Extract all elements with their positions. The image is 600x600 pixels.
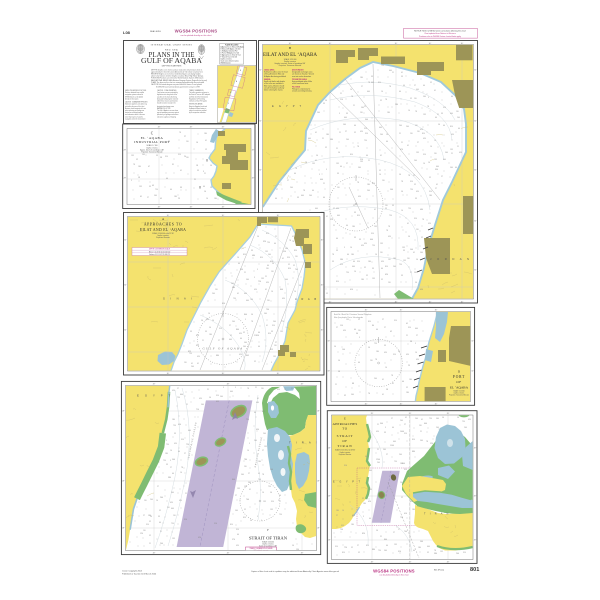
svg-text:30°: 30° — [321, 330, 324, 332]
svg-text:110: 110 — [419, 425, 422, 427]
svg-text:92: 92 — [351, 547, 353, 549]
svg-text:27: 27 — [276, 189, 278, 191]
svg-text:560: 560 — [343, 124, 346, 126]
svg-text:180: 180 — [336, 510, 339, 512]
svg-text:1000: 1000 — [400, 431, 404, 433]
svg-text:135: 135 — [374, 226, 377, 228]
svg-text:420: 420 — [364, 243, 367, 245]
svg-text:64: 64 — [340, 166, 342, 168]
svg-text:420: 420 — [388, 236, 391, 238]
svg-text:27: 27 — [404, 424, 406, 426]
svg-text:240: 240 — [263, 433, 266, 435]
svg-text:27: 27 — [336, 515, 338, 517]
svg-text:845: 845 — [246, 355, 249, 357]
svg-text:31: 31 — [172, 164, 174, 166]
svg-text:64: 64 — [294, 173, 296, 175]
svg-text:420: 420 — [179, 500, 182, 502]
svg-text:27: 27 — [357, 545, 359, 547]
svg-text:110: 110 — [407, 258, 410, 260]
svg-text:240: 240 — [346, 139, 349, 141]
svg-text:78: 78 — [375, 359, 377, 361]
svg-text:720: 720 — [410, 189, 413, 191]
svg-text:27: 27 — [184, 453, 186, 455]
svg-text:110: 110 — [167, 507, 170, 509]
svg-text:96: 96 — [356, 333, 358, 335]
svg-text:78: 78 — [434, 550, 436, 552]
svg-text:135: 135 — [450, 149, 453, 151]
svg-text:9: 9 — [223, 387, 224, 389]
svg-text:9: 9 — [261, 520, 262, 522]
svg-text:84: 84 — [372, 325, 374, 327]
svg-text:GULF OF AQABA: GULF OF AQABA — [141, 58, 202, 65]
svg-text:41: 41 — [180, 170, 182, 172]
svg-text:240: 240 — [273, 321, 276, 323]
svg-text:720: 720 — [258, 281, 261, 283]
svg-text:30°: 30° — [167, 373, 170, 375]
svg-text:64: 64 — [399, 91, 401, 93]
svg-text:92: 92 — [406, 387, 408, 389]
svg-text:420: 420 — [199, 398, 202, 400]
svg-text:27: 27 — [157, 486, 159, 488]
svg-text:940: 940 — [402, 463, 405, 465]
svg-text:310: 310 — [335, 546, 338, 548]
svg-text:28°: 28° — [222, 126, 225, 128]
svg-text:640: 640 — [244, 293, 247, 295]
svg-text:560: 560 — [450, 167, 453, 169]
svg-text:9: 9 — [319, 174, 320, 176]
svg-text:92: 92 — [429, 177, 431, 179]
svg-text:580: 580 — [340, 259, 343, 261]
svg-text:21: 21 — [204, 173, 206, 175]
svg-text:64: 64 — [458, 128, 460, 130]
svg-text:12: 12 — [205, 149, 207, 151]
svg-text:880: 880 — [412, 451, 415, 453]
svg-text:240: 240 — [456, 553, 459, 555]
svg-text:720: 720 — [374, 343, 377, 345]
svg-text:810: 810 — [422, 133, 425, 135]
svg-text:30°: 30° — [222, 373, 225, 375]
svg-text:27: 27 — [416, 335, 418, 337]
svg-text:810: 810 — [357, 215, 360, 217]
svg-text:180: 180 — [204, 133, 207, 135]
svg-text:Copies of this chart and its u: Copies of this chart and its updates may… — [251, 570, 339, 573]
svg-text:29: 29 — [178, 198, 180, 200]
svg-text:640: 640 — [450, 113, 453, 115]
svg-text:560: 560 — [154, 195, 157, 197]
svg-text:STRAIT: STRAIT — [337, 434, 354, 438]
svg-text:78: 78 — [391, 375, 393, 377]
svg-text:110: 110 — [337, 187, 340, 189]
svg-text:640: 640 — [229, 339, 232, 341]
svg-text:27: 27 — [435, 188, 437, 190]
svg-text:64: 64 — [336, 238, 338, 240]
svg-text:28°: 28° — [328, 448, 331, 450]
svg-text:41: 41 — [249, 489, 251, 491]
svg-text:64: 64 — [312, 190, 314, 192]
svg-text:110: 110 — [388, 259, 391, 261]
svg-text:33: 33 — [156, 155, 158, 157]
svg-text:27: 27 — [345, 131, 347, 133]
svg-text:240: 240 — [232, 321, 235, 323]
svg-text:520: 520 — [430, 443, 433, 445]
svg-text:420: 420 — [376, 431, 379, 433]
svg-text:WGS84 POSITIONS: WGS84 POSITIONS — [373, 569, 415, 574]
svg-text:21: 21 — [186, 404, 188, 406]
svg-text:30°: 30° — [328, 341, 331, 343]
svg-text:9: 9 — [131, 180, 132, 182]
svg-text:92: 92 — [421, 237, 423, 239]
svg-text:310: 310 — [357, 261, 360, 263]
svg-text:78: 78 — [332, 254, 334, 256]
svg-text:78: 78 — [368, 82, 370, 84]
svg-text:STRAIT OF TIRAN: STRAIT OF TIRAN — [249, 536, 287, 541]
svg-text:21: 21 — [451, 153, 453, 155]
svg-text:64: 64 — [347, 254, 349, 256]
svg-text:41: 41 — [406, 323, 408, 325]
svg-text:1200: 1200 — [376, 459, 380, 461]
svg-text:92: 92 — [149, 535, 151, 537]
svg-text:180: 180 — [429, 195, 432, 197]
svg-text:640: 640 — [180, 394, 183, 396]
svg-text:21: 21 — [340, 93, 342, 95]
svg-text:92: 92 — [325, 147, 327, 149]
svg-text:640: 640 — [301, 195, 304, 197]
svg-text:110: 110 — [261, 388, 264, 390]
svg-text:900: 900 — [380, 423, 383, 425]
svg-text:27: 27 — [184, 136, 186, 138]
svg-text:92: 92 — [159, 510, 161, 512]
svg-text:21: 21 — [401, 142, 403, 144]
svg-text:310: 310 — [272, 325, 275, 327]
svg-text:810: 810 — [222, 303, 225, 305]
svg-text:110: 110 — [416, 229, 419, 231]
svg-text:560: 560 — [285, 248, 288, 250]
svg-text:78: 78 — [388, 226, 390, 228]
svg-text:640: 640 — [424, 423, 427, 425]
svg-text:560: 560 — [235, 510, 238, 512]
svg-text:420: 420 — [416, 359, 419, 361]
svg-text:470: 470 — [262, 411, 265, 413]
svg-text:310: 310 — [184, 519, 187, 521]
svg-text:14: 14 — [379, 174, 381, 176]
svg-text:33: 33 — [385, 208, 387, 210]
svg-text:14: 14 — [430, 146, 432, 148]
svg-text:30°: 30° — [259, 70, 262, 72]
svg-text:110: 110 — [434, 153, 437, 155]
svg-text:14: 14 — [180, 472, 182, 474]
svg-text:720: 720 — [389, 215, 392, 217]
svg-text:55: 55 — [398, 351, 400, 353]
svg-text:33: 33 — [149, 186, 151, 188]
svg-text:420: 420 — [451, 134, 454, 136]
svg-text:52: 52 — [136, 159, 138, 161]
svg-text:560: 560 — [383, 449, 386, 451]
svg-text:180: 180 — [412, 509, 415, 511]
svg-text:240: 240 — [231, 283, 234, 285]
svg-text:92: 92 — [254, 361, 256, 363]
svg-text:180: 180 — [376, 351, 379, 353]
svg-text:78: 78 — [422, 219, 424, 221]
svg-text:56: 56 — [316, 155, 318, 157]
svg-text:560: 560 — [390, 189, 393, 191]
svg-text:92: 92 — [410, 98, 412, 100]
svg-text:420: 420 — [358, 196, 361, 198]
svg-text:56: 56 — [150, 516, 152, 518]
svg-text:560: 560 — [220, 396, 223, 398]
svg-text:560: 560 — [201, 404, 204, 406]
svg-text:180: 180 — [214, 198, 217, 200]
svg-text:760: 760 — [258, 479, 261, 481]
svg-text:420: 420 — [254, 289, 257, 291]
svg-text:21: 21 — [457, 146, 459, 148]
svg-text:800: 800 — [232, 479, 235, 481]
svg-text:30°: 30° — [395, 301, 398, 303]
svg-text:64: 64 — [237, 534, 239, 536]
svg-text:78: 78 — [289, 240, 291, 242]
svg-text:27: 27 — [218, 340, 220, 342]
svg-text:240: 240 — [457, 117, 460, 119]
svg-text:640: 640 — [337, 215, 340, 217]
svg-text:790: 790 — [340, 529, 343, 531]
svg-text:180: 180 — [351, 524, 354, 526]
svg-text:9: 9 — [385, 427, 386, 429]
svg-text:92: 92 — [358, 552, 360, 554]
svg-text:33: 33 — [174, 433, 176, 435]
svg-text:41: 41 — [315, 132, 317, 134]
svg-text:410: 410 — [404, 513, 407, 515]
svg-text:64: 64 — [274, 243, 276, 245]
svg-text:56: 56 — [270, 492, 272, 494]
svg-text:30°: 30° — [259, 121, 262, 123]
svg-text:28°: 28° — [301, 553, 304, 555]
svg-text:64: 64 — [203, 186, 205, 188]
svg-text:780: 780 — [244, 459, 247, 461]
svg-text:640: 640 — [256, 402, 259, 404]
svg-text:B: B — [240, 70, 241, 72]
svg-text:14: 14 — [401, 210, 403, 212]
svg-text:41: 41 — [265, 289, 267, 291]
svg-text:14: 14 — [342, 510, 344, 512]
svg-text:40: 40 — [166, 178, 168, 180]
svg-text:420: 420 — [266, 282, 269, 284]
svg-text:790: 790 — [266, 309, 269, 311]
svg-text:800: 800 — [280, 289, 283, 291]
svg-text:135: 135 — [360, 161, 363, 163]
svg-text:30°: 30° — [277, 373, 280, 375]
svg-text:740: 740 — [246, 499, 249, 501]
svg-text:420: 420 — [336, 208, 339, 210]
svg-text:28°: 28° — [474, 448, 477, 450]
svg-text:14: 14 — [271, 291, 273, 293]
svg-text:310: 310 — [371, 233, 374, 235]
svg-text:64: 64 — [423, 85, 425, 87]
svg-text:27: 27 — [336, 327, 338, 329]
svg-text:41: 41 — [292, 236, 294, 238]
svg-text:9: 9 — [245, 319, 246, 321]
svg-text:815: 815 — [270, 349, 273, 351]
svg-text:56: 56 — [292, 545, 294, 547]
svg-text:910: 910 — [398, 551, 401, 553]
svg-text:720: 720 — [177, 397, 180, 399]
svg-text:30°: 30° — [400, 404, 403, 406]
svg-text:64: 64 — [451, 96, 453, 98]
svg-text:110: 110 — [186, 157, 189, 159]
svg-text:41: 41 — [407, 223, 409, 225]
svg-text:420: 420 — [197, 356, 200, 358]
svg-text:30°: 30° — [124, 285, 127, 287]
svg-text:64: 64 — [386, 141, 388, 143]
svg-text:J O R D A N: J O R D A N — [430, 257, 471, 261]
svg-text:28°: 28° — [122, 481, 125, 483]
svg-text:56: 56 — [210, 187, 212, 189]
svg-text:104: 104 — [342, 349, 345, 351]
svg-text:110: 110 — [388, 282, 391, 284]
svg-text:180: 180 — [361, 279, 364, 281]
svg-text:27: 27 — [391, 418, 393, 420]
svg-text:92: 92 — [354, 132, 356, 134]
svg-text:640: 640 — [371, 82, 374, 84]
svg-text:690: 690 — [256, 429, 259, 431]
svg-text:720: 720 — [163, 460, 166, 462]
svg-text:810: 810 — [243, 254, 246, 256]
svg-text:58: 58 — [386, 389, 388, 391]
svg-text:310: 310 — [429, 191, 432, 193]
svg-text:E G Y P T: E G Y P T — [272, 104, 303, 108]
svg-text:440: 440 — [320, 179, 323, 181]
svg-text:27: 27 — [143, 515, 145, 517]
svg-text:180: 180 — [393, 258, 396, 260]
svg-text:33: 33 — [158, 516, 160, 518]
svg-text:33: 33 — [346, 113, 348, 115]
svg-text:810: 810 — [342, 552, 345, 554]
svg-text:27: 27 — [262, 450, 264, 452]
svg-text:27: 27 — [346, 163, 348, 165]
svg-text:9: 9 — [257, 516, 258, 518]
svg-text:56: 56 — [209, 397, 211, 399]
svg-text:180: 180 — [258, 461, 261, 463]
svg-text:720: 720 — [429, 418, 432, 420]
svg-text:135: 135 — [423, 114, 426, 116]
svg-text:58: 58 — [138, 177, 140, 179]
svg-text:340: 340 — [270, 469, 273, 471]
svg-text:640: 640 — [188, 430, 191, 432]
svg-text:600: 600 — [370, 239, 373, 241]
svg-text:E G Y P T: E G Y P T — [333, 481, 362, 484]
svg-text:420: 420 — [170, 502, 173, 504]
svg-text:38: 38 — [160, 157, 162, 159]
svg-text:14: 14 — [415, 352, 417, 354]
svg-text:640: 640 — [416, 89, 419, 91]
svg-text:92: 92 — [430, 82, 432, 84]
svg-text:810: 810 — [294, 250, 297, 252]
svg-text:420: 420 — [381, 261, 384, 263]
svg-text:380: 380 — [168, 477, 171, 479]
svg-text:570: 570 — [232, 539, 235, 541]
svg-text:27: 27 — [417, 142, 419, 144]
svg-text:41: 41 — [380, 155, 382, 157]
svg-text:135: 135 — [403, 260, 406, 262]
svg-text:41: 41 — [205, 140, 207, 142]
svg-text:720: 720 — [171, 523, 174, 525]
svg-text:350: 350 — [410, 501, 413, 503]
svg-text:135: 135 — [280, 331, 283, 333]
svg-text:27: 27 — [386, 454, 388, 456]
svg-text:OF: OF — [456, 380, 462, 384]
svg-text:33: 33 — [299, 285, 301, 287]
svg-text:180: 180 — [363, 503, 366, 505]
svg-text:420: 420 — [277, 389, 280, 391]
svg-text:21: 21 — [392, 72, 394, 74]
svg-text:720: 720 — [408, 208, 411, 210]
svg-text:14: 14 — [262, 492, 264, 494]
svg-text:480: 480 — [420, 209, 423, 211]
svg-text:78: 78 — [426, 441, 428, 443]
svg-text:180: 180 — [409, 379, 412, 381]
svg-text:620: 620 — [385, 274, 388, 276]
svg-text:1100: 1100 — [390, 445, 394, 447]
svg-text:28°: 28° — [328, 540, 331, 542]
svg-text:420: 420 — [198, 537, 201, 539]
svg-text:30°: 30° — [328, 371, 331, 373]
svg-text:110: 110 — [215, 289, 218, 291]
svg-text:560: 560 — [414, 272, 417, 274]
svg-text:64: 64 — [170, 189, 172, 191]
svg-text:380: 380 — [330, 139, 333, 141]
svg-text:240: 240 — [377, 462, 380, 464]
svg-text:27: 27 — [235, 495, 237, 497]
svg-text:33: 33 — [197, 170, 199, 172]
svg-text:690: 690 — [178, 424, 181, 426]
svg-text:21: 21 — [336, 148, 338, 150]
svg-text:810: 810 — [385, 266, 388, 268]
svg-text:240: 240 — [380, 134, 383, 136]
svg-text:420: 420 — [236, 545, 239, 547]
svg-text:SEA LEVEL: SEA LEVEL — [150, 30, 162, 33]
svg-text:64: 64 — [353, 261, 355, 263]
svg-text:28°: 28° — [252, 150, 255, 152]
svg-text:28°: 28° — [190, 126, 193, 128]
svg-text:92: 92 — [427, 552, 429, 554]
svg-text:E G Y P T: E G Y P T — [137, 393, 173, 397]
svg-text:14: 14 — [206, 198, 208, 200]
svg-text:110: 110 — [456, 111, 459, 113]
svg-text:64: 64 — [455, 167, 457, 169]
svg-text:64: 64 — [381, 268, 383, 270]
svg-text:110: 110 — [385, 205, 388, 207]
svg-text:180: 180 — [360, 77, 363, 79]
svg-text:30°: 30° — [124, 330, 127, 332]
svg-text:420: 420 — [343, 330, 346, 332]
svg-text:27: 27 — [275, 342, 277, 344]
svg-text:310: 310 — [216, 395, 219, 397]
svg-text:56: 56 — [209, 327, 211, 329]
svg-text:78: 78 — [251, 321, 253, 323]
svg-text:380: 380 — [434, 553, 437, 555]
svg-text:30°: 30° — [461, 301, 464, 303]
svg-text:110: 110 — [414, 98, 417, 100]
svg-text:9: 9 — [344, 247, 345, 249]
svg-text:135: 135 — [402, 247, 405, 249]
svg-text:33: 33 — [401, 275, 403, 277]
svg-text:310: 310 — [443, 107, 446, 109]
svg-text:78: 78 — [357, 146, 359, 148]
svg-text:310: 310 — [404, 469, 407, 471]
svg-text:110: 110 — [370, 360, 373, 362]
svg-text:64: 64 — [267, 265, 269, 267]
svg-text:720: 720 — [155, 189, 158, 191]
svg-text:INTERNATIONAL CHART SERIES: INTERNATIONAL CHART SERIES — [151, 43, 193, 46]
svg-text:21: 21 — [149, 543, 151, 545]
